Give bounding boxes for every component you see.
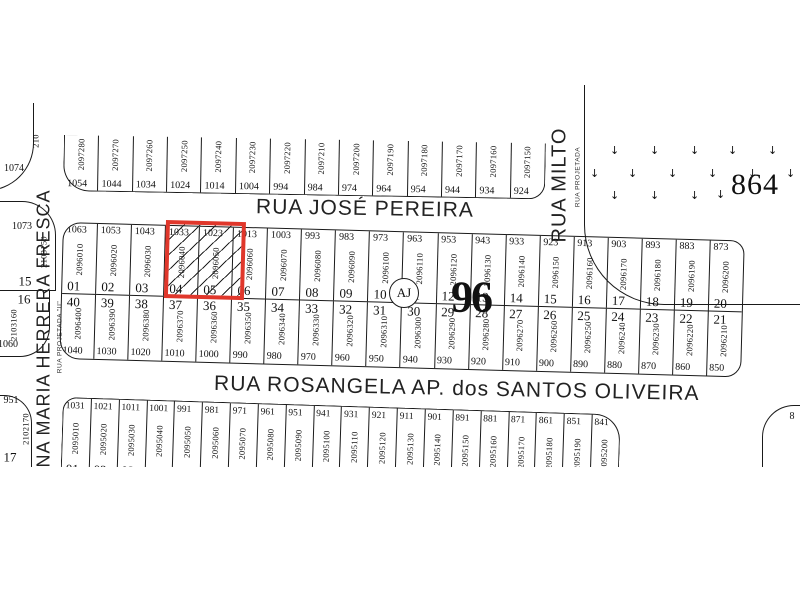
lot-code: 2097170: [454, 145, 464, 177]
lot-street-number: 903: [611, 240, 626, 250]
lot-street-number: 961: [260, 407, 275, 417]
lot-street-number: 933: [509, 237, 524, 247]
lot-code: 2096280: [481, 319, 491, 351]
lot-cell: 21 2096210 850: [706, 311, 742, 376]
lot-street-number: 954: [411, 185, 426, 195]
lot-street-number: 900: [539, 359, 554, 369]
lot-cell: 1053 2096020 02: [95, 224, 131, 295]
lot-cell: 2097160 934: [475, 142, 510, 198]
lot-street-number: 953: [441, 235, 456, 245]
street-label-ana-maria-herrera-fresca: ANA MARIA HERRERA FRESCA: [34, 189, 55, 467]
lot-cell: 2097180 954: [407, 141, 442, 197]
lot-number: 06: [237, 284, 250, 297]
lot-street-number: 910: [505, 358, 520, 368]
lot-cell: 971 2095070 07: [227, 403, 257, 467]
area-864-label: 864: [731, 168, 779, 202]
lot-cell: 39 2096390 1030: [93, 295, 129, 360]
lot-cell: 23 2096230 870: [638, 310, 674, 375]
lot-code: 2096080: [313, 250, 323, 282]
lot-cell: 923 2096150 15: [538, 236, 574, 307]
vegetation-symbol: ↓: [610, 145, 619, 156]
lot-code: 2095140: [433, 434, 443, 466]
lot-cell: 961 2095080 08: [255, 404, 285, 467]
lot-code: 2095080: [266, 428, 276, 460]
lot-number: 14: [510, 291, 523, 304]
lot-street-number: 1020: [130, 348, 150, 359]
lot-street-number: 940: [403, 355, 418, 365]
lot-code: 2096360: [209, 312, 219, 344]
lot-code: 210: [32, 134, 41, 148]
vegetation-symbol: ↓: [768, 145, 777, 156]
lot-street-number: 871: [511, 415, 526, 425]
lot-cell: 901 2095140 14: [422, 409, 452, 467]
lot-cell: 35 2096350 990: [229, 299, 265, 364]
vegetation-symbol: ↓: [650, 145, 659, 156]
lot-cell: 1033 2096040 04: [163, 226, 199, 297]
lot-number: 17: [612, 294, 625, 307]
lot-street-number: 870: [641, 362, 656, 372]
lot-street-number: 983: [339, 232, 354, 242]
lot-code: 2095030: [127, 424, 137, 456]
lot-cell: 881 2095160 16: [478, 411, 508, 467]
block-96-number: 96: [451, 272, 491, 323]
lot-street-number: 990: [233, 351, 248, 361]
lot-cell: 861 2095180 18: [533, 413, 563, 467]
lot-street-number: 1074: [4, 164, 24, 174]
lot-number: 02: [101, 280, 114, 293]
lot-cell: 883 2096190 19: [674, 240, 710, 311]
lot-street-number: 931: [344, 410, 359, 420]
cadastral-map: 210 1074 1073 2103150 15 16 2103160 1060…: [0, 0, 800, 600]
lot-street-number: 841: [594, 418, 609, 428]
lot-street-number: 1024: [170, 181, 190, 191]
lot-cell: 2097150 924: [510, 143, 545, 199]
vegetation-symbol: ↓: [728, 145, 737, 156]
lot-street-number: 984: [308, 183, 323, 193]
lot-street-number: 971: [233, 406, 248, 416]
lot-number: 19: [680, 296, 693, 309]
lot-street-number: 891: [455, 413, 470, 423]
lot-cell: 991 2095050 05: [172, 401, 202, 467]
lot-street-number: 950: [369, 354, 384, 364]
lot-street-number: 1014: [204, 181, 224, 191]
lot-cell: 913 2096160 16: [572, 237, 608, 308]
lot-cell: 37 2096370 1010: [161, 297, 197, 362]
lot-code: 2096270: [515, 320, 525, 352]
lot-code: 2095050: [182, 426, 192, 458]
vegetation-symbol: ↓: [650, 190, 659, 201]
vegetation-symbol: ↓: [708, 168, 717, 179]
lot-code: 2096160: [585, 258, 595, 290]
lot-cell: 27 2096270 910: [502, 306, 538, 371]
lot-cell: 30 2096300 940: [400, 303, 436, 368]
lot-code: 2096060: [245, 248, 255, 280]
lot-cell: 851 2095190 19: [561, 414, 591, 467]
lot-street-number: 991: [177, 405, 192, 415]
lot-cell: 2097220 994: [269, 139, 304, 195]
lot-cell: 31 2096310 950: [366, 302, 402, 367]
lot-number: 03: [135, 281, 148, 294]
lot-street-number: 1060: [0, 340, 18, 350]
lot-street-number: 951: [4, 396, 19, 406]
lot-street-number: 970: [301, 352, 316, 362]
lot-code: 2103160: [10, 309, 19, 341]
lot-cell: 36 2096360 1000: [195, 298, 231, 363]
lot-code: 2097210: [317, 142, 327, 174]
lot-street-number: 1010: [164, 349, 184, 360]
lot-cell: 22 2096220 860: [672, 311, 708, 376]
lot-code: 2097270: [111, 139, 121, 171]
lot-code: 2096220: [685, 324, 695, 356]
lot-street-number: 944: [445, 186, 460, 196]
vegetation-symbol: ↓: [590, 168, 599, 179]
aj-marker-label: AJ: [397, 285, 411, 300]
lot-number: 05: [203, 283, 216, 296]
map-sheet: 210 1074 1073 2103150 15 16 2103160 1060…: [0, 85, 800, 467]
lot-cell: 2097270 1044: [97, 136, 132, 192]
lot-code: 2096260: [549, 321, 559, 353]
lot-code: 2096040: [177, 247, 187, 279]
lot-cell: 1021 2095020 02: [88, 399, 118, 467]
lot-cell: 841 2095200 20: [589, 415, 619, 467]
lot-street-number: 951: [288, 408, 303, 418]
lot-cell: 33 2096330 970: [298, 300, 334, 365]
lot-code: 2096230: [651, 323, 661, 355]
lot-number: 20: [714, 297, 727, 310]
lot-street-number: 1073: [12, 222, 32, 232]
lot-code: 2096190: [687, 260, 697, 292]
vegetation-symbol: ↓: [690, 145, 699, 156]
lot-number: 17: [4, 451, 17, 464]
lot-code: 2096090: [347, 251, 357, 283]
lot-code: 2097240: [214, 140, 224, 172]
top-block: 2097280 1054 2097270 1044 2097260 1034 2…: [63, 135, 546, 199]
vegetation-symbol: ↓: [668, 168, 677, 179]
lot-street-number: 1033: [169, 228, 189, 239]
lot-code: 2097230: [248, 141, 258, 173]
lot-street-number: 890: [573, 360, 588, 370]
lot-number: 05: [177, 466, 190, 467]
lot-street-number: 993: [305, 232, 320, 242]
lot-street-number: 974: [342, 184, 357, 194]
lot-cell: 38 2096380 1020: [127, 296, 163, 361]
lot-code: 2095200: [600, 439, 610, 467]
lot-code: 2096290: [447, 318, 457, 350]
lot-code: 2095150: [461, 434, 471, 466]
vegetation-symbol: ↓: [610, 190, 619, 201]
lot-code: 2096010: [75, 244, 85, 276]
lot-cell: 2097260 1034: [132, 136, 167, 192]
lot-street-number: 1044: [101, 180, 121, 190]
lot-street-number: 1000: [199, 350, 219, 361]
lot-code: 2096140: [517, 256, 527, 288]
lot-street-number: 994: [273, 183, 288, 193]
lot-street-number: 1063: [67, 225, 87, 236]
bottom-block: 1031 2095010 01 1021 2095020 02 1011 209…: [60, 397, 620, 467]
lot-street-number: 881: [483, 414, 498, 424]
lot-code: 2096170: [619, 259, 629, 291]
lot-cell: 871 2095170 17: [506, 412, 536, 467]
lot-number: 16: [578, 293, 591, 306]
lot-street-number: 1004: [239, 182, 259, 192]
lot-street-number: 901: [427, 412, 442, 422]
lot-street-number: 850: [709, 364, 724, 374]
lot-street-number: 960: [335, 353, 350, 363]
lot-code: 2095180: [544, 437, 554, 467]
lot-street-number: 911: [400, 412, 414, 422]
lot-cell: 40 2096400 1040: [60, 294, 95, 359]
lot-code: 2096030: [143, 246, 153, 278]
lot-code: 2095170: [516, 436, 526, 467]
lot-street-number: 1031: [66, 401, 85, 412]
lot-code: 2096210: [719, 325, 729, 357]
lot-code: 2096320: [345, 315, 355, 347]
lot-code: 2097200: [351, 143, 361, 175]
lot-street-number: 963: [407, 234, 422, 244]
lot-street-number: 851: [566, 417, 581, 427]
lot-code: 2096070: [279, 249, 289, 281]
lot-number: 06: [205, 466, 218, 467]
lot-code: 2096250: [583, 322, 593, 354]
lot-code: 2095040: [155, 425, 165, 457]
lot-cell: 24 2096240 880: [604, 309, 640, 374]
lot-street-number: 920: [471, 357, 486, 367]
lot-code: 2095120: [377, 432, 387, 464]
lot-code: 2095070: [238, 427, 248, 459]
lot-code: 2095160: [489, 435, 499, 467]
lot-code: 2095010: [71, 422, 81, 454]
lot-street-number: 873: [713, 243, 728, 253]
lot-code: 2096330: [311, 314, 321, 346]
lot-street-number: 860: [675, 363, 690, 373]
lot-cell: 2097190 964: [372, 140, 407, 196]
lot-code: 2095100: [322, 430, 332, 462]
lot-code: 2095110: [349, 431, 359, 463]
lot-cell: 993 2096080 08: [299, 229, 335, 300]
lot-code: 2097160: [489, 145, 499, 177]
lot-cell: 933 2096140 14: [504, 235, 540, 306]
lot-number: 08: [305, 286, 318, 299]
lot-code: 2096370: [175, 311, 185, 343]
lot-street-number: 1003: [271, 231, 291, 242]
lot-street-number: 913: [577, 239, 592, 249]
lot-street-number: 1023: [203, 229, 223, 240]
lot-street-number: 930: [437, 356, 452, 366]
lot-street-number: 1021: [93, 402, 112, 413]
street-label-rua-milton: RUA MILTO: [549, 128, 572, 243]
lot-street-number: 924: [514, 187, 529, 197]
lot-street-number: 880: [607, 361, 622, 371]
lot-cell: 25 2096250 890: [570, 308, 606, 373]
lot-code: 2097220: [283, 142, 293, 174]
lot-number: 03: [121, 464, 134, 467]
lot-code: 2097180: [420, 144, 430, 176]
vegetation-symbol: ↓: [786, 168, 795, 179]
lot-code: 2097190: [386, 143, 396, 175]
lot-code: 2096310: [379, 316, 389, 348]
lot-cell: 983 2096090 09: [333, 230, 369, 301]
aj-marker: AJ: [389, 278, 419, 308]
lot-street-number: 1054: [67, 179, 87, 189]
lot-street-number: 1001: [149, 404, 168, 415]
lot-street-number: 921: [372, 411, 387, 421]
vegetation-symbol: ↓: [628, 168, 637, 179]
lot-code: 2102170: [22, 413, 31, 445]
lot-code: 2096300: [413, 317, 423, 349]
west-corner-lot: [0, 103, 34, 191]
lot-code: 2097280: [77, 138, 87, 170]
lot-street-number: 934: [479, 186, 494, 196]
lot-cell: 903 2096170 17: [606, 238, 642, 309]
lot-street-number: 941: [316, 409, 331, 419]
lot-cell: 2097170 944: [441, 142, 476, 198]
lot-street-number: 1053: [101, 226, 121, 237]
lot-number: 07: [271, 285, 284, 298]
lot-number: 04: [149, 465, 162, 467]
lot-cell: 2097200 974: [338, 140, 373, 196]
lot-code: 2096400: [73, 308, 83, 340]
lot-street-number: 883: [679, 242, 694, 252]
lot-code: 2096240: [617, 323, 627, 355]
lot-code: 2095060: [210, 427, 220, 459]
lot-code: 2095090: [294, 429, 304, 461]
lot-number: 18: [646, 295, 659, 308]
lot-cell: 2097240 1014: [200, 137, 235, 193]
lot-street-number: 1034: [136, 180, 156, 190]
lot-number: 10: [373, 287, 386, 300]
lot-code: 2097260: [145, 139, 155, 171]
lot-code: 2096110: [415, 253, 425, 285]
lot-street-number: 973: [373, 233, 388, 243]
lot-cell: 941 2095100 10: [311, 406, 341, 467]
lot-cell: 1003 2096070 07: [265, 229, 301, 300]
lot-cell: 34 2096340 980: [264, 299, 300, 364]
lot-code: 2097250: [180, 140, 190, 172]
lot-cell: 891 2095150 15: [450, 410, 480, 467]
lot-cell: 1043 2096030 03: [129, 225, 165, 296]
lot-cell: 1013 2096060 06: [231, 228, 267, 299]
lot-code: 2096390: [107, 309, 117, 341]
lot-number: 02: [93, 463, 106, 467]
lot-number: 09: [339, 287, 352, 300]
lot-street-number: 980: [267, 352, 282, 362]
street-label-rua-jose-pereira: RUA JOSÉ PEREIRA: [256, 195, 474, 222]
lot-cell: 26 2096260 900: [536, 307, 572, 372]
lot-code: 2097150: [523, 146, 533, 178]
lot-code: 2095190: [572, 438, 582, 467]
lot-cell: 1031 2095010 01: [61, 398, 90, 467]
lot-code: 2095130: [405, 433, 415, 465]
lot-street-number: 923: [543, 238, 558, 248]
lot-code: 2096380: [141, 310, 151, 342]
lot-cell: 893 2096180 18: [640, 239, 676, 310]
lot-cell: 2097250 1024: [166, 137, 201, 193]
lot-street-number: 981: [205, 405, 220, 415]
vegetation-symbol: ↓: [716, 189, 725, 200]
lot-code: 2096350: [243, 312, 253, 344]
lot-cell: 1063 2096010 01: [62, 223, 97, 294]
lot-street-number: 1013: [237, 230, 257, 241]
lot-cell: 931 2095110 11: [339, 407, 369, 467]
lot-code: 2095020: [99, 423, 109, 455]
lot-code: 2096200: [721, 261, 731, 293]
lot-code: 2096180: [653, 259, 663, 291]
lot-code: 2096150: [551, 257, 561, 289]
lot-code: 2096050: [211, 247, 221, 279]
lot-number: 15: [544, 292, 557, 305]
lot-number: 01: [67, 279, 80, 292]
vegetation-symbol: ↓: [690, 190, 699, 201]
lot-number: 15: [19, 275, 32, 288]
lot-cell: 2097210 984: [303, 139, 338, 195]
lot-cell: 1023 2096050 05: [197, 227, 233, 298]
lot-street-number: 1043: [135, 227, 155, 238]
lot-street-number: 8: [790, 412, 795, 422]
lot-street-number: 964: [376, 184, 391, 194]
lot-cell: 981 2095060 06: [200, 402, 230, 467]
lot-cell: 951 2095090 09: [283, 405, 313, 467]
street-sublabel-rua-projetada: RUA PROJETADA: [575, 147, 582, 207]
lot-street-number: 1011: [121, 403, 140, 414]
lot-cell: 873 2096200 20: [708, 240, 744, 311]
lot-cell: 921 2095120 12: [366, 408, 396, 467]
lot-street-number: 1040: [62, 346, 82, 357]
lot-code: 2096340: [277, 313, 287, 345]
lot-number: 04: [169, 282, 182, 295]
lot-number: 16: [18, 293, 31, 306]
lot-cell: 1011 2095030 03: [116, 400, 146, 467]
lot-street-number: 1030: [96, 347, 116, 358]
lot-cell: 32 2096320 960: [332, 301, 368, 366]
street-label-rua-rosangela: RUA ROSANGELA AP. dos SANTOS OLIVEIRA: [214, 372, 700, 406]
lot-cell: 2097230 1004: [235, 138, 270, 194]
lot-number: 01: [66, 462, 79, 467]
lot-street-number: 893: [645, 241, 660, 251]
lot-code: 2096100: [381, 252, 391, 284]
lot-cell: 1001 2095040 04: [144, 401, 174, 467]
lot-street-number: 861: [539, 416, 554, 426]
lot-code: 2096020: [109, 245, 119, 277]
lot-cell: 2097280 1054: [64, 135, 98, 191]
lot-street-number: 943: [475, 236, 490, 246]
lot-cell: 911 2095130 13: [394, 408, 424, 467]
